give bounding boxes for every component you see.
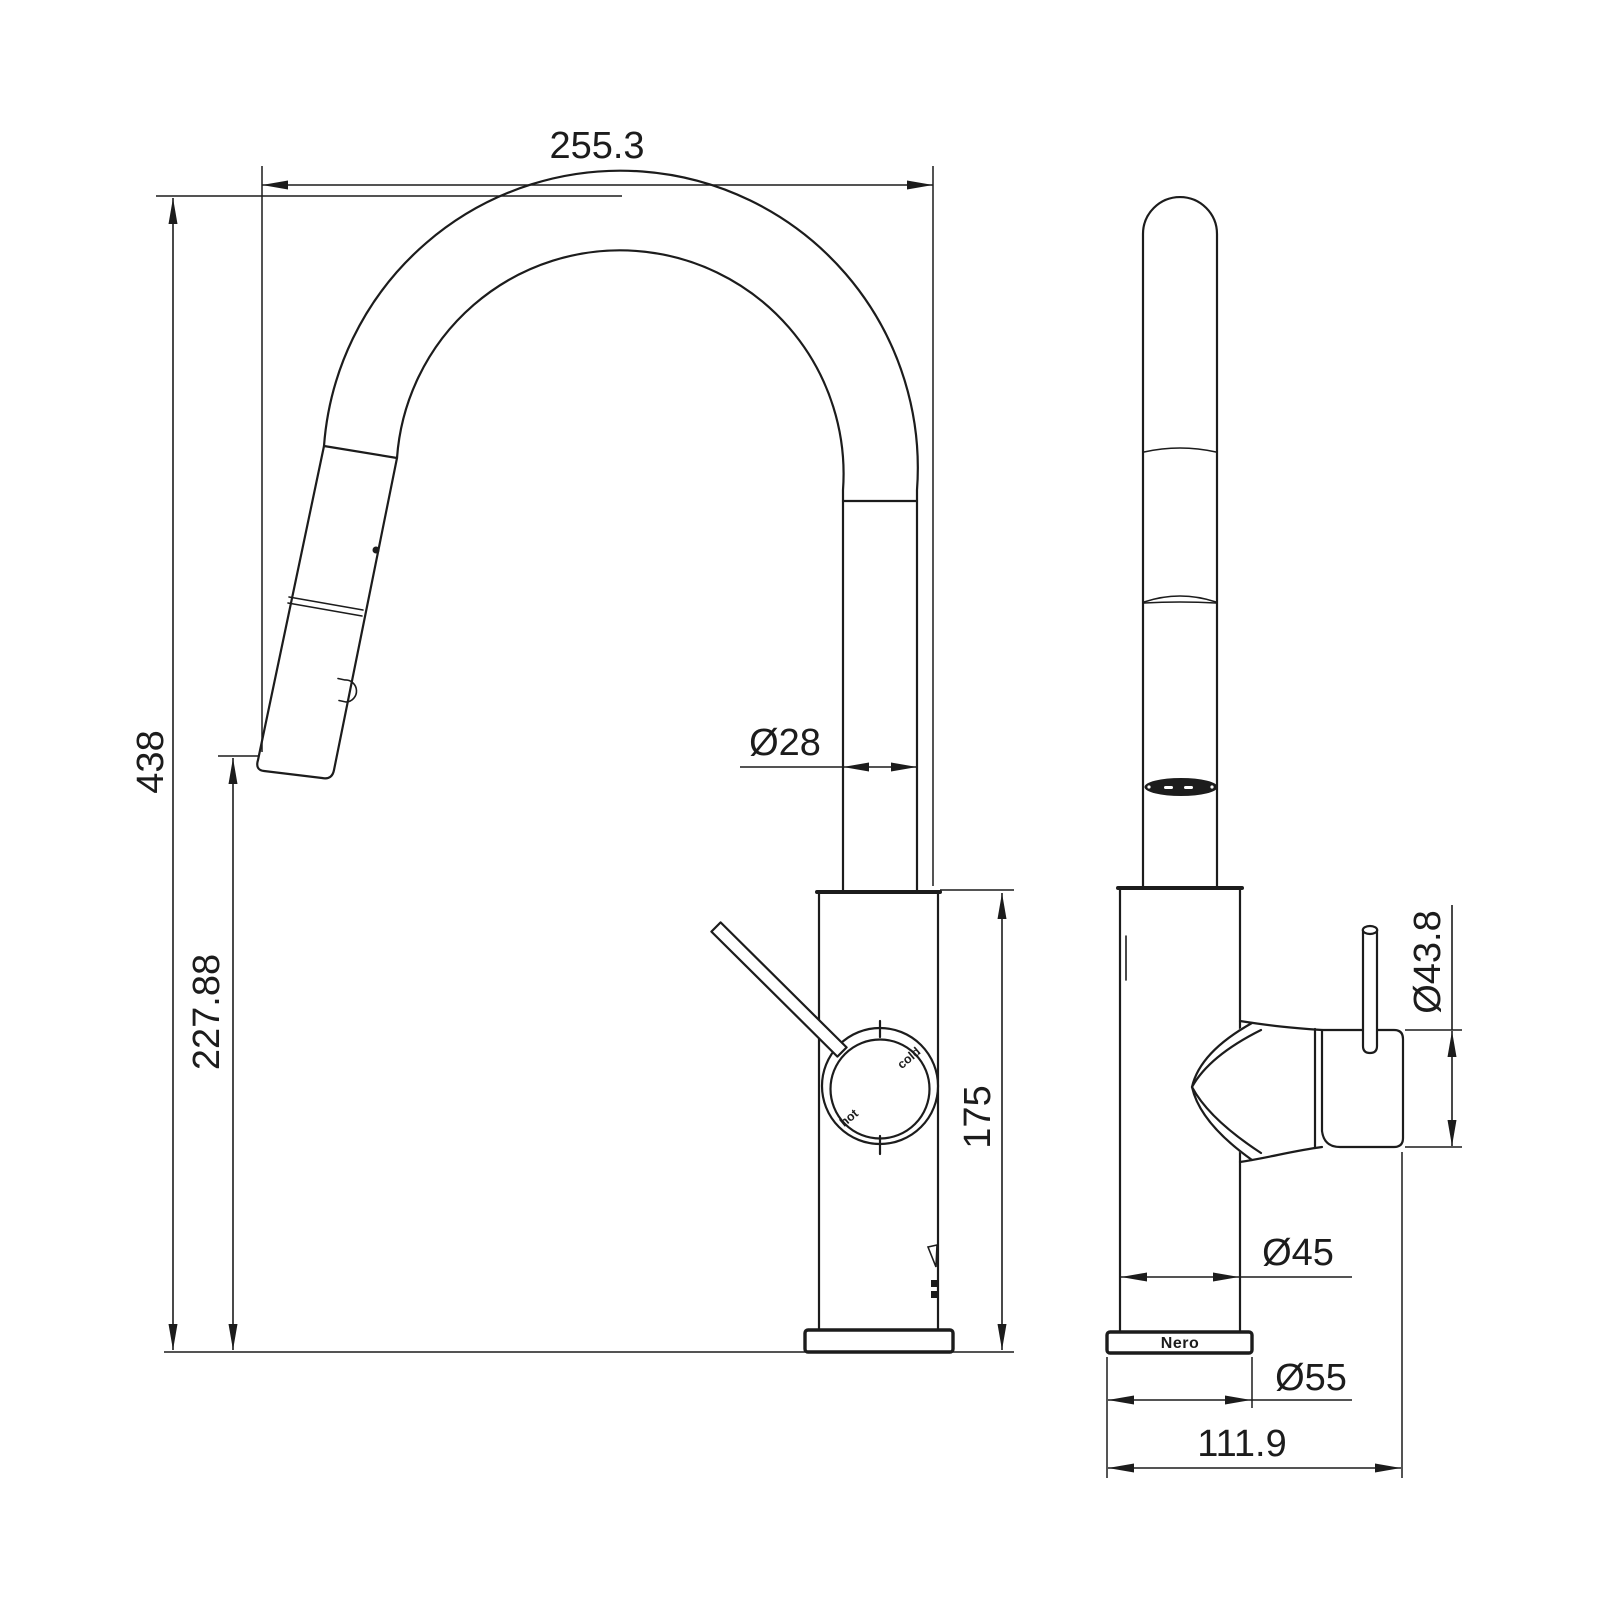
dim-base-diameter-value: Ø55 <box>1275 1357 1347 1399</box>
base-flange-side <box>805 1330 953 1352</box>
body-logo-dash-2 <box>931 1291 937 1298</box>
dim-handle-diameter-value: Ø43.8 <box>1407 910 1449 1014</box>
side-view: cold hot 255.3 438 227.88 <box>130 125 1014 1352</box>
spout-arc-outer <box>324 171 918 890</box>
dim-overall-width-value: 255.3 <box>549 125 644 167</box>
dimension-spout-diameter: Ø28 <box>740 722 917 767</box>
spray-face-dot-left <box>1147 785 1150 788</box>
handle-rod <box>1363 930 1377 1053</box>
dim-overall-height-value: 438 <box>130 730 172 793</box>
spray-face <box>1145 778 1218 796</box>
technical-drawing-canvas: cold hot 255.3 438 227.88 <box>0 0 1600 1600</box>
pullout-spray-head <box>257 446 397 778</box>
front-view: Nero Ø43.8 Ø45 Ø55 111.9 <box>1107 197 1462 1478</box>
spout-arc-inner <box>397 250 844 890</box>
dim-overall-depth-value: 111.9 <box>1197 1423 1286 1465</box>
faucet-dimension-drawing: cold hot 255.3 438 227.88 <box>0 0 1600 1600</box>
dimension-handle-diameter: Ø43.8 <box>1405 905 1462 1147</box>
dim-spout-diameter-value: Ø28 <box>749 722 821 764</box>
spray-face-slot-2 <box>1184 786 1193 789</box>
brand-label: Nero <box>1161 1335 1199 1352</box>
dim-body-diameter-value: Ø45 <box>1262 1232 1334 1274</box>
body-logo-dash-1 <box>931 1280 937 1287</box>
spray-head-pin <box>373 547 380 554</box>
spray-face-dot-right <box>1210 785 1213 788</box>
dimension-base-diameter: Ø55 <box>1107 1357 1352 1408</box>
dimension-outlet-height: 227.88 <box>186 756 258 1350</box>
spray-face-slot-1 <box>1164 786 1173 789</box>
handle-rod-cap <box>1363 926 1377 934</box>
dimension-body-height: 175 <box>940 890 1014 1350</box>
dimension-overall-height: 438 <box>130 196 622 1350</box>
dim-body-height-value: 175 <box>957 1085 999 1148</box>
dim-outlet-height-value: 227.88 <box>186 954 228 1070</box>
